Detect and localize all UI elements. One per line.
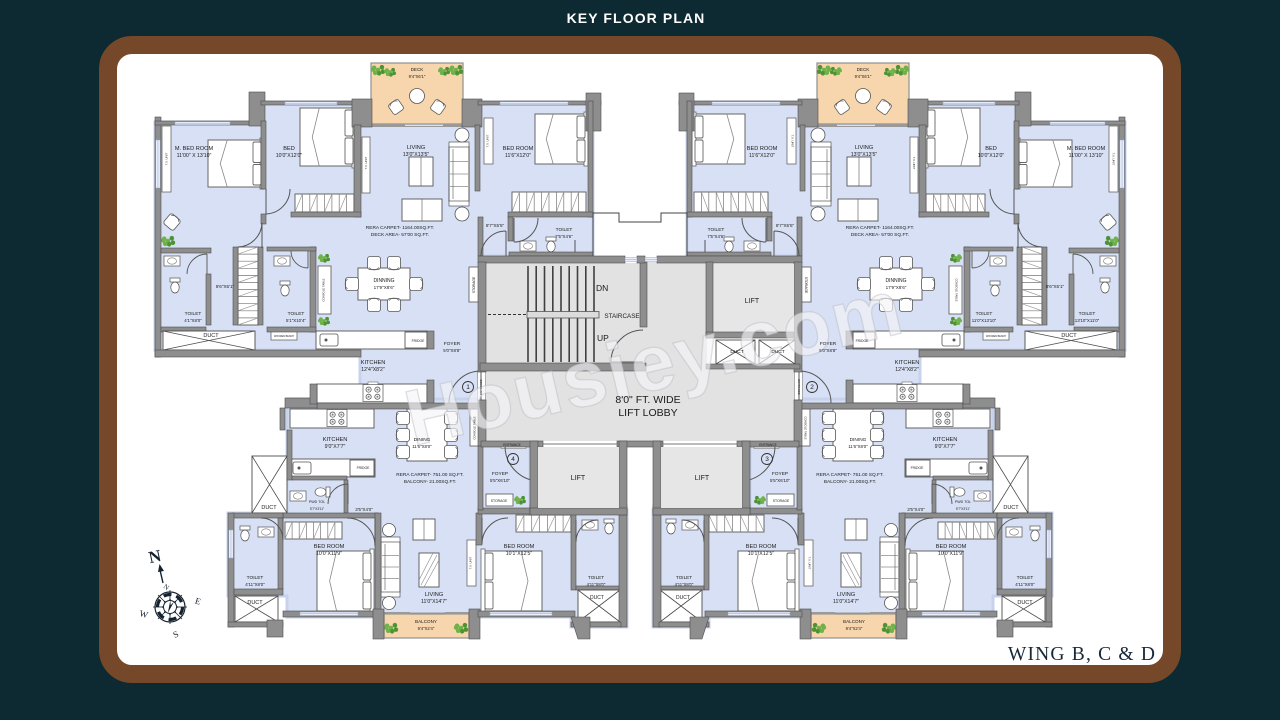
svg-text:5'1"X10'4": 5'1"X10'4" (286, 318, 306, 323)
svg-text:DUCT: DUCT (730, 349, 743, 355)
svg-text:4'11"X8'0": 4'11"X8'0" (1015, 582, 1035, 587)
svg-text:T.V. UNIT: T.V. UNIT (165, 152, 169, 165)
svg-text:RERA CARPET- 751.00 SQ.FT.: RERA CARPET- 751.00 SQ.FT. (816, 472, 883, 478)
svg-text:FOYER: FOYER (444, 341, 461, 347)
svg-text:5'0"X8'8": 5'0"X8'8" (443, 348, 461, 353)
svg-text:BED ROOM: BED ROOM (314, 544, 345, 550)
svg-text:DUCT: DUCT (1061, 333, 1077, 339)
svg-text:BED ROOM: BED ROOM (504, 544, 535, 550)
svg-text:KITCHEN: KITCHEN (895, 360, 920, 366)
svg-text:13'0"X13'5": 13'0"X13'5" (851, 152, 878, 158)
svg-text:M. BED ROOM: M. BED ROOM (175, 146, 214, 152)
svg-text:DUCT: DUCT (1003, 505, 1019, 511)
svg-text:5'5"X6'10": 5'5"X6'10" (770, 478, 790, 483)
svg-text:T.V. UNIT: T.V. UNIT (486, 134, 490, 147)
svg-text:ENTRANCE: ENTRANCE (759, 443, 777, 447)
svg-text:T.V. UNIT: T.V. UNIT (1112, 153, 1116, 166)
svg-text:DECK AREA- 57'00 SQ.FT.: DECK AREA- 57'00 SQ.FT. (851, 232, 909, 238)
svg-text:11'0"X14'7": 11'0"X14'7" (833, 599, 859, 605)
svg-text:RERA CARPET- 1164.00SQ.FT.: RERA CARPET- 1164.00SQ.FT. (366, 225, 434, 231)
svg-text:T.V. UNIT: T.V. UNIT (912, 157, 916, 170)
svg-text:T.V. UNIT: T.V. UNIT (364, 156, 368, 169)
svg-text:WOODEN BENCH: WOODEN BENCH (986, 335, 1006, 338)
svg-text:DN: DN (596, 283, 608, 293)
svg-text:9'0"X7'7": 9'0"X7'7" (325, 444, 346, 450)
svg-text:DUCT: DUCT (261, 505, 277, 511)
svg-text:LIFT: LIFT (745, 298, 760, 305)
svg-text:4'11"X8'0": 4'11"X8'0" (245, 582, 265, 587)
svg-text:KITCHEN: KITCHEN (933, 437, 958, 443)
svg-text:17'9"X8'6": 17'9"X8'6" (886, 285, 907, 290)
svg-text:DINING: DINING (850, 437, 867, 443)
svg-text:12'4"X8'2": 12'4"X8'2" (895, 367, 919, 373)
svg-text:BALCONY: BALCONY (415, 619, 437, 624)
svg-text:DECK: DECK (411, 67, 425, 72)
svg-text:UP: UP (597, 333, 609, 343)
svg-text:7'5"X4'6": 7'5"X4'6" (707, 234, 725, 239)
svg-text:T.V. UNIT: T.V. UNIT (469, 556, 473, 569)
svg-text:8'7"X5'5": 8'7"X5'5" (776, 223, 795, 228)
svg-text:9'4"X2'4": 9'4"X2'4" (418, 626, 435, 631)
svg-text:ENTRANCE: ENTRANCE (797, 379, 801, 395)
svg-text:DUCT: DUCT (590, 595, 604, 601)
svg-text:FOYEP: FOYEP (492, 471, 508, 477)
svg-text:3'5"X4'0": 3'5"X4'0" (355, 507, 373, 512)
svg-text:TOILET: TOILET (288, 311, 305, 317)
svg-text:11'6"X12'0": 11'6"X12'0" (749, 153, 775, 159)
svg-text:DUCT: DUCT (247, 600, 263, 606)
svg-text:TOILET: TOILET (1079, 311, 1096, 317)
svg-text:M. BED ROOM: M. BED ROOM (1067, 146, 1106, 152)
svg-text:8'0" FT. WIDE: 8'0" FT. WIDE (615, 394, 680, 406)
svg-text:BALCONY- 21.00SQ.FT.: BALCONY- 21.00SQ.FT. (824, 479, 876, 485)
svg-text:13'10"X11'0": 13'10"X11'0" (1075, 318, 1100, 323)
svg-text:STAIRCASE: STAIRCASE (604, 313, 639, 320)
svg-text:LIVING: LIVING (407, 145, 425, 151)
svg-text:TOILET: TOILET (1017, 575, 1034, 581)
svg-text:4'1"X8'0": 4'1"X8'0" (184, 318, 202, 323)
svg-text:DINNING: DINNING (885, 278, 906, 284)
svg-text:TOILET: TOILET (708, 227, 725, 233)
svg-text:CONSOLE TABLE: CONSOLE TABLE (955, 278, 959, 301)
svg-text:3: 3 (765, 456, 769, 463)
svg-text:BED: BED (985, 146, 997, 152)
svg-text:9'4"X6'1": 9'4"X6'1" (409, 74, 426, 79)
svg-text:TOILET: TOILET (185, 311, 202, 317)
svg-text:9'0"X7'7": 9'0"X7'7" (935, 444, 956, 450)
svg-text:BALCONY: BALCONY (843, 619, 865, 624)
svg-text:CONSOLE TABLE: CONSOLE TABLE (804, 416, 808, 439)
svg-text:10'1"X12'5": 10'1"X12'5" (506, 551, 533, 557)
svg-text:KITCHEN: KITCHEN (323, 437, 348, 443)
svg-text:9'4"X6'1": 9'4"X6'1" (855, 74, 872, 79)
svg-text:5'7"X3'11": 5'7"X3'11" (956, 507, 970, 511)
svg-text:12'4"X8'2": 12'4"X8'2" (361, 367, 385, 373)
svg-text:WOODEN BENCH: WOODEN BENCH (274, 335, 294, 338)
svg-text:LIVING: LIVING (425, 592, 443, 598)
svg-text:11'0"X13'10": 11'0"X13'10" (972, 318, 997, 323)
svg-text:LIVING: LIVING (855, 145, 873, 151)
svg-text:2: 2 (810, 384, 814, 391)
svg-text:FOYER: FOYER (820, 341, 837, 347)
svg-text:DECK AREA- 57'00 SQ.FT.: DECK AREA- 57'00 SQ.FT. (371, 232, 429, 238)
svg-text:ENTRANCE: ENTRANCE (479, 379, 483, 395)
svg-text:4'11"X8'0": 4'11"X8'0" (587, 582, 606, 587)
svg-text:13'0"X13'5": 13'0"X13'5" (403, 152, 430, 158)
svg-text:BED ROOM: BED ROOM (503, 146, 534, 152)
svg-text:CONSOLE TABLE: CONSOLE TABLE (322, 278, 326, 301)
svg-text:LIFT: LIFT (571, 475, 586, 482)
svg-text:FRIDGE: FRIDGE (911, 466, 925, 470)
svg-text:11'6"X8'0": 11'6"X8'0" (412, 444, 432, 449)
svg-text:BED ROOM: BED ROOM (747, 146, 778, 152)
svg-text:TOILET: TOILET (247, 575, 264, 581)
svg-text:PWD TOL: PWD TOL (955, 500, 971, 504)
svg-text:CONSOLE TABLE: CONSOLE TABLE (473, 416, 477, 439)
svg-text:FRIDGE: FRIDGE (856, 339, 870, 343)
svg-text:TOILET: TOILET (588, 575, 604, 580)
svg-text:DUCT: DUCT (771, 349, 784, 355)
svg-text:T.V. UNIT: T.V. UNIT (808, 557, 812, 570)
svg-text:10'0"X12'0": 10'0"X12'0" (978, 153, 1005, 159)
svg-text:T.V. UNIT: T.V. UNIT (791, 135, 795, 148)
svg-text:BALCONY- 21.00SQ.FT.: BALCONY- 21.00SQ.FT. (404, 479, 456, 485)
svg-text:3'5"X4'0": 3'5"X4'0" (907, 507, 925, 512)
svg-text:BED: BED (283, 146, 295, 152)
svg-text:10'0"X11'9": 10'0"X11'9" (316, 551, 342, 557)
svg-text:5'7"X3'11": 5'7"X3'11" (310, 507, 324, 511)
svg-text:LIFT: LIFT (695, 475, 710, 482)
svg-text:11'00" X 13'10": 11'00" X 13'10" (177, 153, 212, 159)
svg-text:KITCHEN: KITCHEN (361, 360, 386, 366)
svg-text:1: 1 (466, 384, 470, 391)
svg-text:11'6"X12'0": 11'6"X12'0" (505, 153, 531, 159)
svg-text:8'7"X5'5": 8'7"X5'5" (486, 223, 505, 228)
svg-text:ENTRANCE: ENTRANCE (503, 443, 521, 447)
svg-text:WING B, C & D: WING B, C & D (1008, 644, 1156, 665)
svg-text:17'9"X8'6": 17'9"X8'6" (374, 285, 395, 290)
svg-text:11'0"X14'7": 11'0"X14'7" (421, 599, 447, 605)
svg-text:STORAGE: STORAGE (472, 276, 476, 293)
svg-text:10'0"X12'0": 10'0"X12'0" (276, 153, 303, 159)
svg-text:PWD TOL: PWD TOL (309, 500, 325, 504)
svg-text:11'00" X 13'10": 11'00" X 13'10" (1069, 153, 1104, 159)
svg-text:FRIDGE: FRIDGE (357, 466, 371, 470)
svg-text:RERA CARPET- 751.00 SQ.FT.: RERA CARPET- 751.00 SQ.FT. (396, 472, 463, 478)
svg-text:FOYEP: FOYEP (772, 471, 788, 477)
svg-text:FRIDGE: FRIDGE (412, 339, 426, 343)
svg-text:TOILET: TOILET (676, 575, 692, 580)
svg-text:8'6"X5'1": 8'6"X5'1" (216, 284, 235, 289)
svg-text:5'5"X6'10": 5'5"X6'10" (490, 478, 510, 483)
svg-text:KEY FLOOR PLAN: KEY FLOOR PLAN (567, 10, 706, 26)
svg-text:DINNING: DINNING (373, 278, 394, 284)
svg-text:DINING: DINING (414, 437, 431, 443)
svg-text:7'5"X4'6": 7'5"X4'6" (555, 234, 573, 239)
svg-text:10'0"X11'9": 10'0"X11'9" (938, 551, 964, 557)
svg-text:LIVING: LIVING (837, 592, 855, 598)
svg-text:4'11"X8'0": 4'11"X8'0" (675, 582, 694, 587)
svg-text:5'0"X8'8": 5'0"X8'8" (819, 348, 837, 353)
svg-text:10'1"X12'5": 10'1"X12'5" (748, 551, 775, 557)
svg-text:DECK: DECK (857, 67, 871, 72)
svg-text:DUCT: DUCT (676, 595, 690, 601)
svg-text:BED ROOM: BED ROOM (936, 544, 967, 550)
svg-text:DUCT: DUCT (1017, 600, 1033, 606)
svg-text:11'6"X8'0": 11'6"X8'0" (848, 444, 868, 449)
svg-text:RERA CARPET- 1164.00SQ.FT.: RERA CARPET- 1164.00SQ.FT. (846, 225, 914, 231)
svg-text:BED ROOM: BED ROOM (746, 544, 777, 550)
svg-text:STORAGE: STORAGE (773, 499, 790, 503)
svg-text:STORAGE: STORAGE (491, 499, 508, 503)
svg-text:LIFT LOBBY: LIFT LOBBY (618, 407, 677, 419)
svg-text:8'6"X5'1": 8'6"X5'1" (1046, 284, 1065, 289)
svg-text:9'4"X2'4": 9'4"X2'4" (846, 626, 863, 631)
svg-text:4: 4 (511, 456, 515, 463)
svg-text:TOILET: TOILET (976, 311, 993, 317)
svg-text:TOILET: TOILET (556, 227, 573, 233)
svg-text:STORAGE: STORAGE (804, 277, 808, 294)
svg-text:DUCT: DUCT (203, 333, 219, 339)
